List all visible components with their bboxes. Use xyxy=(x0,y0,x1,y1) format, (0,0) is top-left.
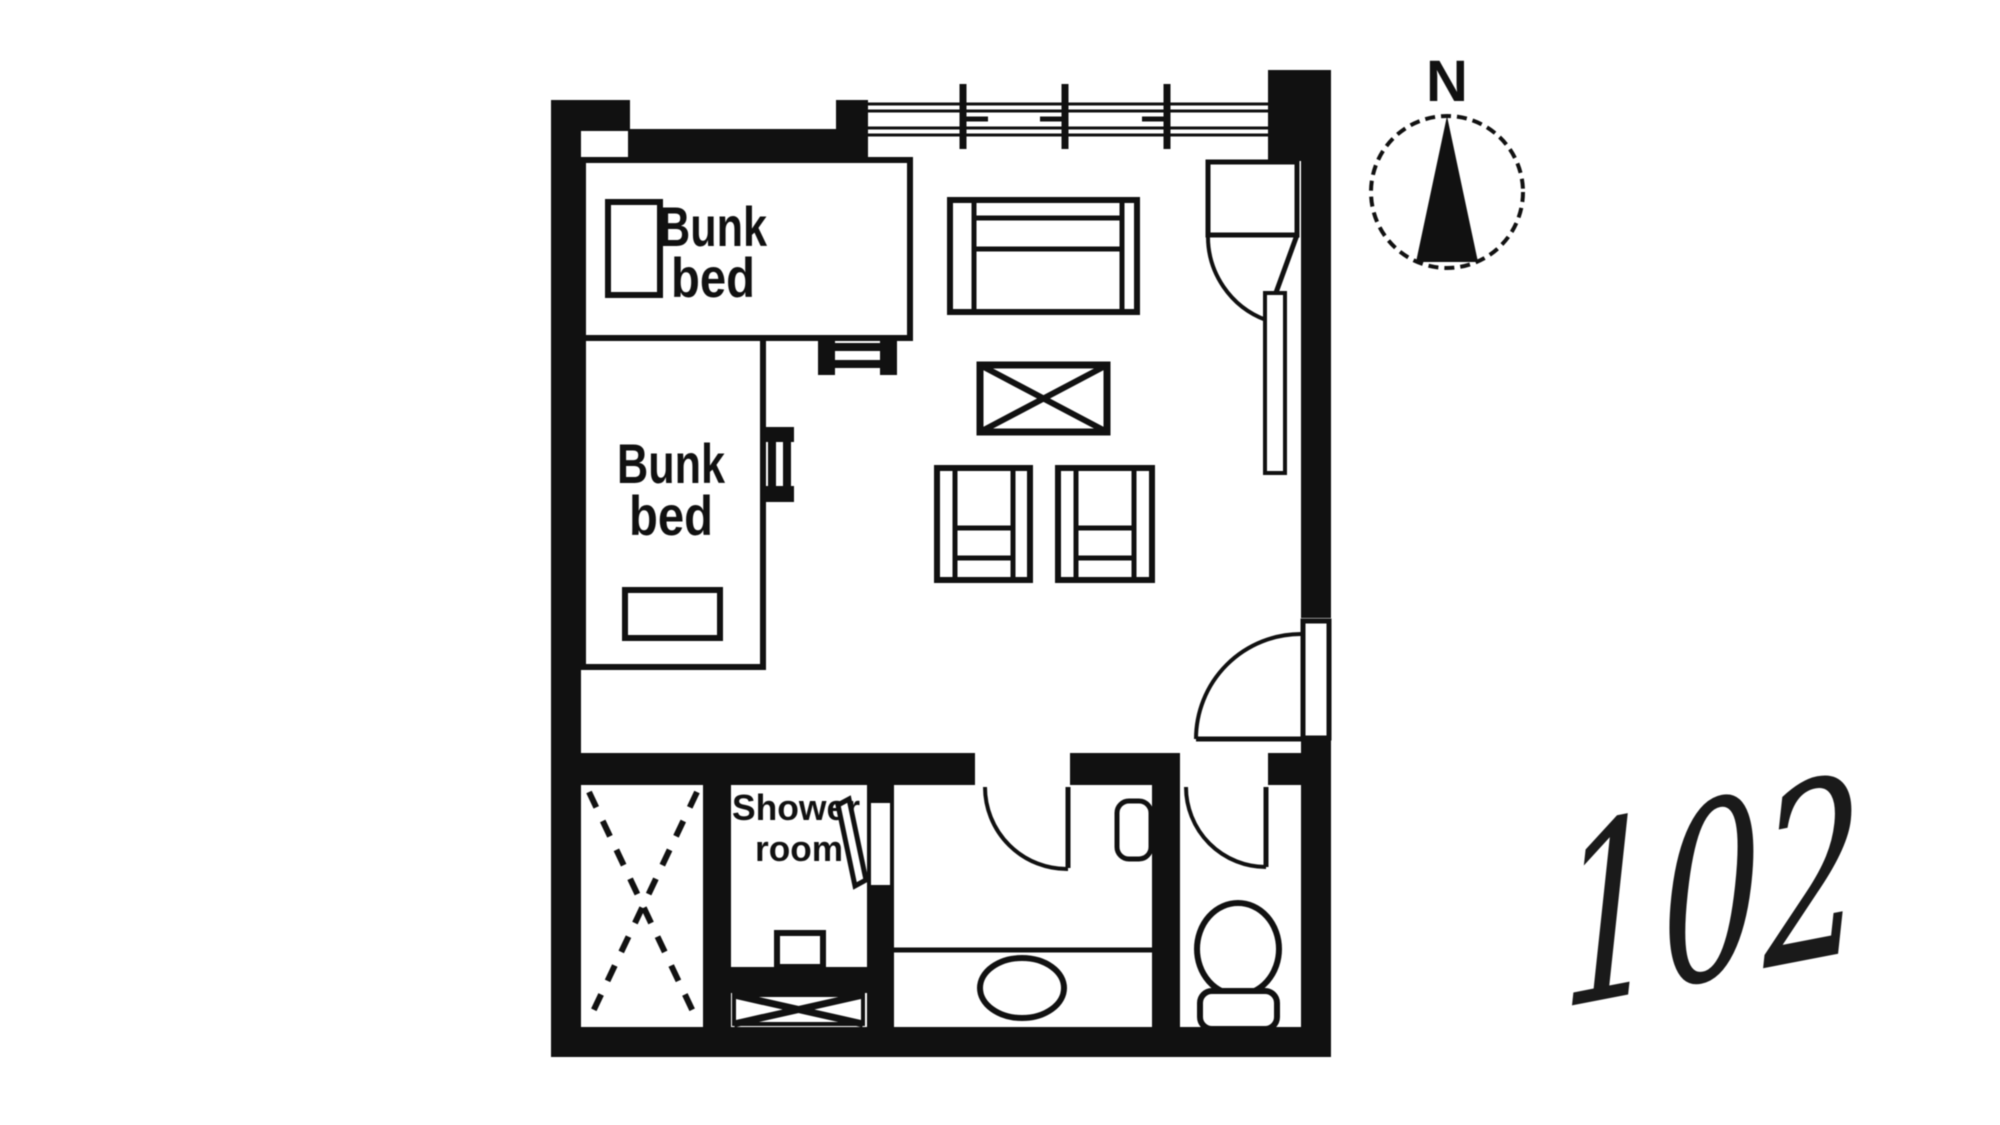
pillow-icon xyxy=(625,590,720,638)
chair-icon xyxy=(1058,468,1152,580)
chair-icon xyxy=(937,468,1030,580)
bunk-bed-upper-label-line2: bed xyxy=(671,246,755,309)
coffee-table-cross-icon xyxy=(980,365,1107,432)
washbasin-room xyxy=(894,787,1152,1018)
sofa-icon xyxy=(950,200,1137,312)
toilet-room xyxy=(1186,787,1279,1029)
toilet-tank xyxy=(1200,991,1277,1029)
closet-dashed-cross-icon xyxy=(589,792,697,1020)
room-number: 102 xyxy=(1557,724,1866,1066)
wall-right-upper xyxy=(1301,70,1331,618)
bunk-bed-lower: Bunk bed xyxy=(583,338,794,667)
shower-unit-icon xyxy=(777,933,823,967)
floor-plan-canvas: Bunk bed Bunk bed xyxy=(0,0,2000,1125)
toilet-icon xyxy=(1197,903,1279,995)
wall-mid-a xyxy=(581,753,975,785)
pillow-icon xyxy=(608,202,660,295)
wall-left xyxy=(551,100,581,1057)
washbasin-counter-icon xyxy=(980,958,1064,1018)
compass-icon: N xyxy=(1371,49,1523,268)
wall-mid-c xyxy=(1268,753,1301,785)
room-number-label: 102 xyxy=(1557,724,1866,1066)
shower-room-label-line2: room xyxy=(755,828,843,869)
wall-mid-b xyxy=(1070,753,1180,785)
floor-plan: Bunk bed Bunk bed xyxy=(0,0,2000,1125)
window-icon xyxy=(868,84,1268,149)
shower-door-panel xyxy=(869,801,892,887)
wall-shower-bottom xyxy=(731,967,867,993)
compass-north-label: N xyxy=(1426,49,1468,114)
wall-top xyxy=(628,129,838,161)
door-swing-icon xyxy=(985,787,1068,869)
entrance-door-swing-icon xyxy=(1196,621,1329,739)
wall-cabinet-icon xyxy=(1117,801,1151,859)
door-swing-icon xyxy=(1186,787,1266,867)
wall-divider-shower-upper-stub xyxy=(867,785,894,799)
wall-divider-shower-lower xyxy=(867,888,894,1027)
wall-right-lower xyxy=(1301,740,1331,1057)
wall-cabinet-panel xyxy=(1265,293,1285,473)
bunk-bed-lower-label-line2: bed xyxy=(629,484,713,547)
ladder-icon xyxy=(763,427,794,502)
vent-cross-icon xyxy=(734,995,863,1024)
wall-divider-closet-shower xyxy=(703,785,731,1027)
compass-needle xyxy=(1416,116,1478,262)
wall-corner-top-left xyxy=(551,100,630,131)
ladder-icon xyxy=(818,337,897,375)
wall-window-post xyxy=(836,100,868,161)
wall-divider-washroom-toilet xyxy=(1152,785,1180,1027)
